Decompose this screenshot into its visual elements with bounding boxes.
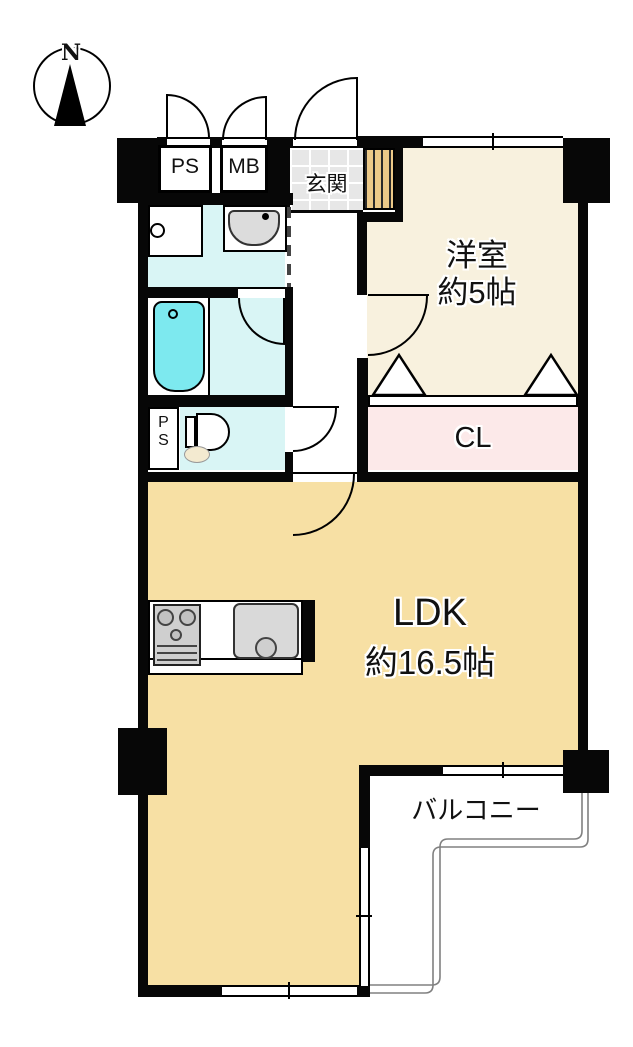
shoe-cabinet xyxy=(363,148,395,210)
wall-right-of-cabinet xyxy=(395,140,403,212)
wall-corridor-left-low xyxy=(285,452,293,472)
wall-corridor-right-low xyxy=(357,358,368,472)
western-room-floor-upper xyxy=(403,148,578,212)
stove-burner-right-icon xyxy=(179,609,196,626)
stove-burner-left-icon xyxy=(157,609,174,626)
north-arrow-icon xyxy=(54,64,86,126)
mb-label: MB xyxy=(220,155,268,179)
wall-bath-toilet xyxy=(148,395,293,407)
ps-side-label-line2: S xyxy=(148,432,179,450)
toilet-door-sill xyxy=(285,407,293,452)
ldk-bottom-window-tick xyxy=(288,982,290,999)
closet-door-triangle-right xyxy=(522,352,580,397)
ldk-size-label: 約16.5帖 xyxy=(330,636,530,684)
wall-left xyxy=(138,140,148,997)
sink-drain-icon xyxy=(255,637,277,659)
bath-door-sill xyxy=(238,287,285,298)
bathtub-faucet-icon xyxy=(168,309,178,319)
balcony-label: バルコニー xyxy=(386,790,566,827)
ps-top-label: PS xyxy=(158,155,212,179)
wall-under-psmb xyxy=(148,193,293,205)
floor-plan: N xyxy=(0,0,633,1047)
washing-machine-drain-icon xyxy=(150,223,165,238)
washroom-dashed-opening xyxy=(287,207,291,287)
western-room-size-label: 約5帖 xyxy=(382,267,572,312)
entrance-door-arc xyxy=(294,77,357,140)
western-room-window-tick xyxy=(492,133,494,150)
ps-door-arc xyxy=(167,94,210,138)
bath-divider-line xyxy=(208,298,210,395)
balcony-railing xyxy=(340,740,633,1010)
wall-corridor-left-mid xyxy=(285,287,293,407)
wall-wash-bath xyxy=(148,287,238,298)
toilet-seat-icon xyxy=(184,446,210,463)
kitchen-pillar xyxy=(303,600,315,662)
ldk-name-label: LDK xyxy=(330,592,530,635)
ldk-floor-lower xyxy=(148,765,359,985)
wall-cl-ldk xyxy=(357,472,588,482)
mb-door-arc xyxy=(222,96,266,140)
closet-label: CL xyxy=(408,422,538,455)
ps-side-label-line1: P xyxy=(148,414,179,432)
genkan-step-line xyxy=(290,210,363,213)
pillar-top-right xyxy=(563,138,610,203)
wall-toilet-ldk xyxy=(148,472,293,482)
wall-below-cabinet xyxy=(357,212,403,222)
wall-bottom-seg xyxy=(138,985,222,997)
wall-corridor-right-up xyxy=(357,212,367,295)
wall-wash-bath-end xyxy=(285,287,293,298)
wall-top-seg-4 xyxy=(357,136,423,148)
closet-door-triangle-left xyxy=(370,352,428,397)
bathtub-icon xyxy=(153,301,205,392)
stove-burner-small-icon xyxy=(170,629,182,641)
stove-grill-icon xyxy=(157,645,197,661)
washbasin-faucet-icon xyxy=(262,213,269,220)
compass-north-label: N xyxy=(56,40,86,66)
toilet-tank-icon xyxy=(185,416,196,448)
toilet-door-arc xyxy=(293,408,337,452)
genkan-label: 玄関 xyxy=(291,168,362,198)
